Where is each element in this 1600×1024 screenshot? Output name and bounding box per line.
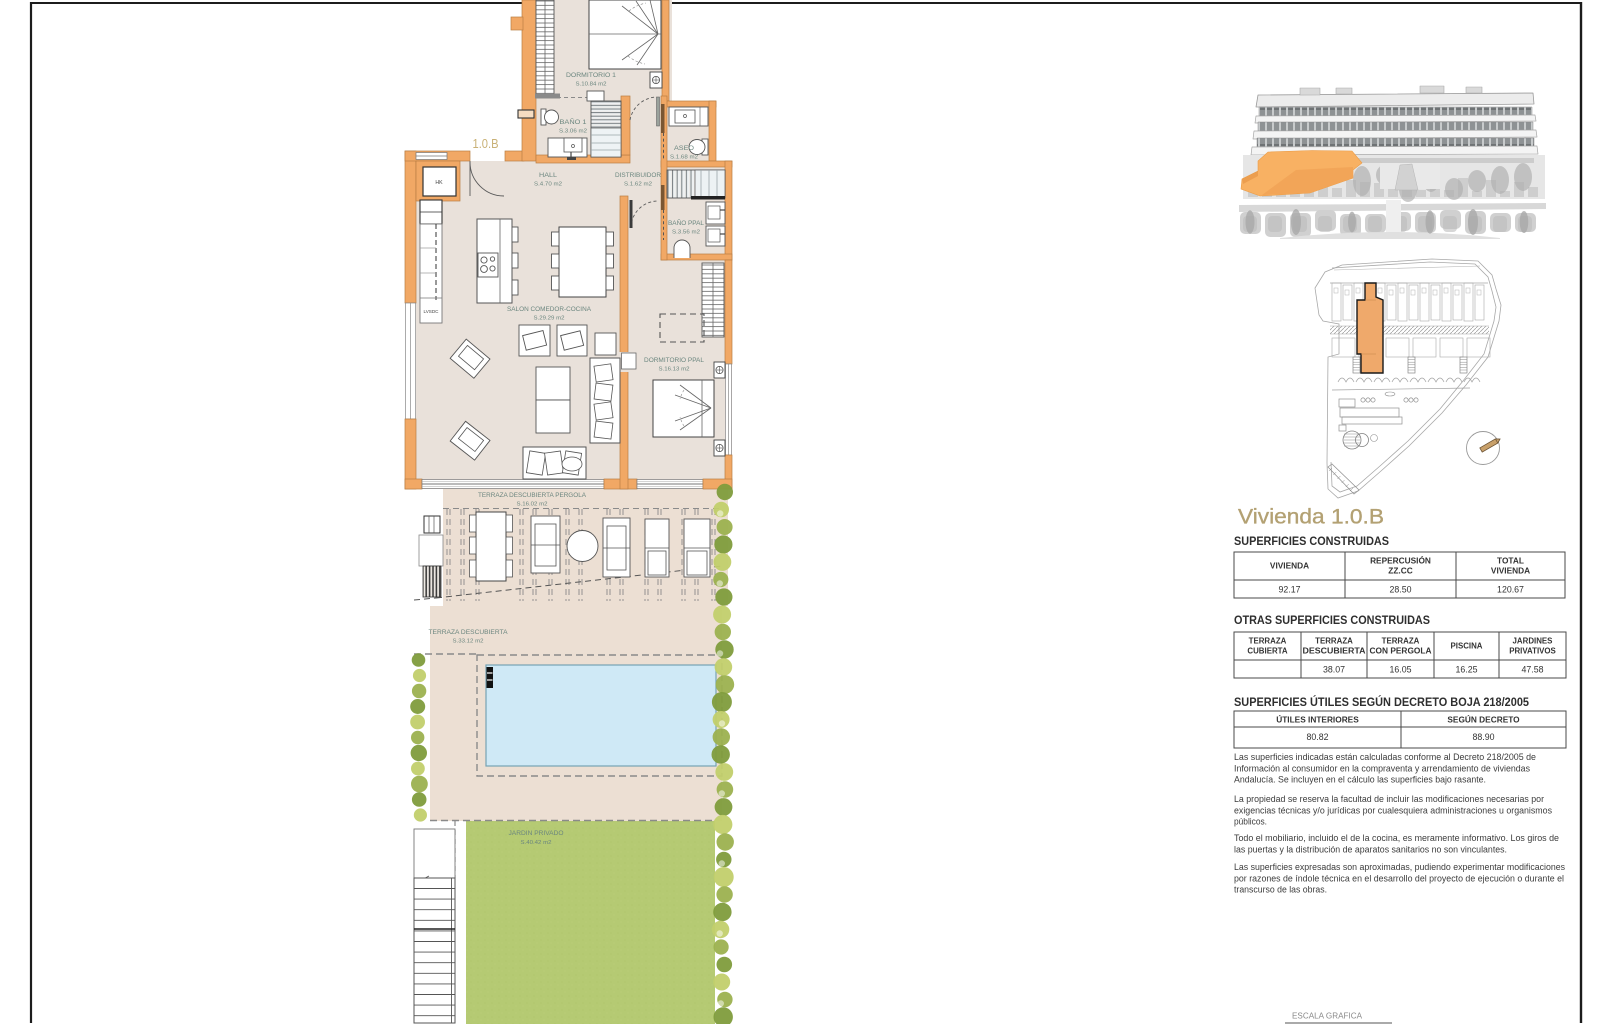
svg-text:SUPERFICIES ÚTILES SEGÚN DECRE: SUPERFICIES ÚTILES SEGÚN DECRETO BOJA 21…	[1234, 696, 1530, 709]
svg-text:Andalucía. Se incluyen en el c: Andalucía. Se incluyen en el cálculo las…	[1234, 775, 1486, 785]
svg-text:S.4.70 m2: S.4.70 m2	[534, 182, 562, 188]
svg-text:BAÑO PPAL: BAÑO PPAL	[668, 218, 705, 227]
svg-text:PRIVATIVOS: PRIVATIVOS	[1509, 647, 1556, 656]
svg-text:16.25: 16.25	[1455, 665, 1477, 675]
svg-text:SALON COMEDOR-COCINA: SALON COMEDOR-COCINA	[507, 306, 592, 313]
svg-text:S.3.56 m2: S.3.56 m2	[672, 230, 700, 236]
svg-text:S.29.29 m2: S.29.29 m2	[534, 316, 565, 322]
svg-text:CON PERGOLA: CON PERGOLA	[1370, 647, 1432, 656]
svg-text:BAÑO 1: BAÑO 1	[560, 117, 588, 126]
svg-text:88.90: 88.90	[1472, 732, 1494, 742]
svg-text:120.67: 120.67	[1497, 585, 1524, 595]
svg-text:TERRAZA DESCUBIERTA: TERRAZA DESCUBIERTA	[429, 629, 509, 636]
svg-text:DORMITORIO PPAL: DORMITORIO PPAL	[644, 357, 705, 364]
svg-text:ASEO: ASEO	[674, 145, 694, 152]
svg-text:VIVIENDA: VIVIENDA	[1270, 561, 1309, 571]
svg-text:TERRAZA: TERRAZA	[1382, 637, 1420, 646]
svg-text:S.33.12 m2: S.33.12 m2	[453, 639, 484, 645]
svg-text:las puertas y la distribución: las puertas y la distribución de aparato…	[1234, 844, 1507, 854]
svg-text:92.17: 92.17	[1278, 585, 1300, 595]
svg-text:JARDIN PRIVADO: JARDIN PRIVADO	[509, 830, 564, 837]
svg-text:SUPERFICIES CONSTRUIDAS: SUPERFICIES CONSTRUIDAS	[1234, 536, 1389, 548]
svg-text:ÚTILES INTERIORES: ÚTILES INTERIORES	[1276, 714, 1359, 725]
svg-text:Las superficies indicadas está: Las superficies indicadas están calculad…	[1234, 752, 1536, 762]
svg-text:ESCALA GRAFICA: ESCALA GRAFICA	[1292, 1011, 1362, 1021]
svg-text:TOTAL: TOTAL	[1497, 556, 1524, 566]
svg-text:JARDINES: JARDINES	[1513, 637, 1553, 646]
svg-text:TERRAZA: TERRAZA	[1249, 637, 1287, 646]
svg-text:TERRAZA DESCUBIERTA PERGOLA: TERRAZA DESCUBIERTA PERGOLA	[478, 492, 587, 499]
svg-text:S.16.13 m2: S.16.13 m2	[659, 367, 690, 373]
svg-text:S.16.02 m2: S.16.02 m2	[517, 502, 548, 508]
svg-text:HK: HK	[435, 180, 443, 186]
svg-text:REPERCUSIÓN: REPERCUSIÓN	[1370, 555, 1431, 566]
svg-text:80.82: 80.82	[1306, 732, 1328, 742]
svg-text:OTRAS SUPERFICIES CONSTRUIDAS: OTRAS SUPERFICIES CONSTRUIDAS	[1234, 615, 1430, 627]
svg-text:CUBIERTA: CUBIERTA	[1247, 647, 1287, 656]
svg-text:Todo el mobiliario, incluido e: Todo el mobiliario, incluido el de la co…	[1234, 833, 1559, 843]
svg-text:S.1.68 m2: S.1.68 m2	[670, 155, 698, 161]
svg-text:S.40.42 m2: S.40.42 m2	[521, 840, 552, 846]
svg-text:S.1.62 m2: S.1.62 m2	[624, 182, 652, 188]
svg-text:por razones de índole técnica: por razones de índole técnica en el desa…	[1234, 873, 1564, 883]
svg-text:47.58: 47.58	[1521, 665, 1543, 675]
svg-text:VIVIENDA: VIVIENDA	[1491, 566, 1530, 576]
svg-text:HALL: HALL	[539, 172, 558, 179]
svg-text:SEGÚN DECRETO: SEGÚN DECRETO	[1447, 714, 1520, 725]
svg-text:transcurso de las obras.: transcurso de las obras.	[1234, 885, 1327, 895]
svg-text:16.05: 16.05	[1389, 665, 1411, 675]
svg-text:exigencias técnicas y/o jurídi: exigencias técnicas y/o jurídicas por cu…	[1234, 805, 1553, 815]
svg-text:PISCINA: PISCINA	[1450, 642, 1482, 651]
svg-text:públicos.: públicos.	[1234, 817, 1267, 827]
svg-text:Las superficies expresadas son: Las superficies expresadas son aproximad…	[1234, 862, 1566, 872]
svg-text:TERRAZA: TERRAZA	[1315, 637, 1353, 646]
svg-text:1.0.B: 1.0.B	[473, 136, 499, 151]
svg-text:S.3.06 m2: S.3.06 m2	[559, 129, 587, 135]
svg-text:DISTRIBUIDOR: DISTRIBUIDOR	[615, 172, 661, 179]
svg-text:Vivienda 1.0.B: Vivienda 1.0.B	[1238, 506, 1384, 529]
svg-text:DORMITORIO 1: DORMITORIO 1	[566, 72, 617, 79]
svg-text:Información al consumidor en l: Información al consumidor en la comprave…	[1234, 763, 1531, 773]
svg-text:La propiedad se reserva la fac: La propiedad se reserva la facultad de i…	[1234, 794, 1544, 804]
svg-text:S.10.84 m2: S.10.84 m2	[576, 82, 607, 88]
svg-text:38.07: 38.07	[1323, 665, 1345, 675]
svg-text:DESCUBIERTA: DESCUBIERTA	[1303, 647, 1366, 656]
svg-text:LVSDC: LVSDC	[424, 309, 440, 314]
svg-text:28.50: 28.50	[1389, 585, 1411, 595]
svg-text:ZZ.CC: ZZ.CC	[1388, 566, 1412, 576]
